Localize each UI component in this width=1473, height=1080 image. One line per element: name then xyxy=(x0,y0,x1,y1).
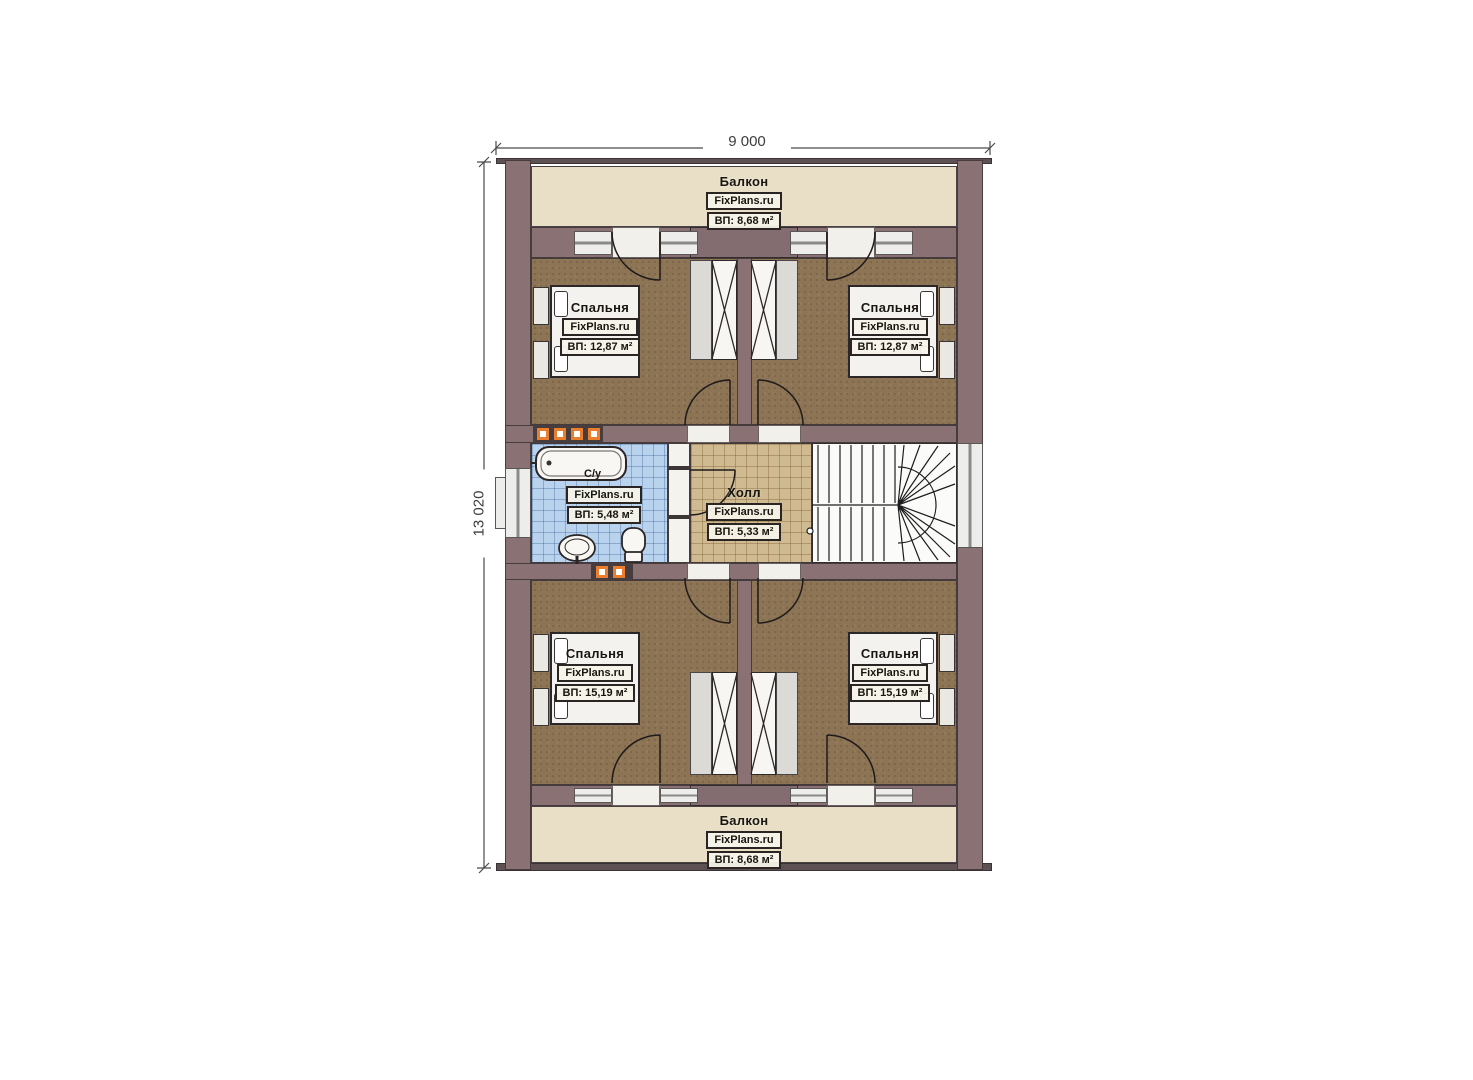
brand-box: FixPlans.ru xyxy=(557,664,632,682)
room-name: Спальня xyxy=(861,646,919,661)
vent-duct xyxy=(571,428,583,440)
room-name: Холл xyxy=(727,485,761,500)
wardrobe-bottom-right xyxy=(751,672,776,775)
brand-box: FixPlans.ru xyxy=(706,192,781,210)
window-bottom-1 xyxy=(574,788,612,803)
window-sill-left xyxy=(495,477,506,529)
window-top-3 xyxy=(790,231,827,255)
balcony-door-opening-top-left xyxy=(612,227,660,258)
wall-mid-lower xyxy=(505,563,957,580)
wardrobe-panel xyxy=(776,672,798,775)
vent-duct xyxy=(588,428,600,440)
wardrobe-top-left xyxy=(712,260,737,360)
outer-wall-top xyxy=(496,158,992,164)
room-name: Спальня xyxy=(571,300,629,315)
door-opening-hall-bedroom-top-left xyxy=(687,425,730,443)
wall-center-top xyxy=(737,258,752,425)
window-left-wall xyxy=(505,468,531,538)
window-bottom-3 xyxy=(790,788,827,803)
dimension-height-label: 13 020 xyxy=(471,470,488,558)
pier-top xyxy=(690,227,798,258)
door-opening-hall-bedroom-bottom-right xyxy=(758,563,801,580)
window-bottom-2 xyxy=(660,788,698,803)
area-box: ВП: 15,19 м² xyxy=(555,684,636,702)
brand-box: FixPlans.ru xyxy=(852,318,927,336)
area-box: ВП: 12,87 м² xyxy=(850,338,931,356)
wardrobe-top-right xyxy=(751,260,776,360)
door-opening-hall-bedroom-bottom-left xyxy=(687,563,730,580)
area-box: ВП: 12,87 м² xyxy=(560,338,641,356)
brand-box: FixPlans.ru xyxy=(706,503,781,521)
room-label-bedroom-bottom-left: Спальня FixPlans.ru ВП: 15,19 м² xyxy=(530,646,660,702)
vent-duct xyxy=(554,428,566,440)
area-box: ВП: 8,68 м² xyxy=(707,212,782,230)
wall-center-bottom xyxy=(737,580,752,785)
room-label-bedroom-bottom-right: Спальня FixPlans.ru ВП: 15,19 м² xyxy=(825,646,955,702)
area-box: ВП: 8,68 м² xyxy=(707,851,782,869)
window-bottom-4 xyxy=(875,788,913,803)
room-name: Балкон xyxy=(720,813,769,828)
door-opening-hall-bedroom-top-right xyxy=(758,425,801,443)
vent-duct xyxy=(596,566,608,578)
room-label-bedroom-top-left: Спальня FixPlans.ru ВП: 12,87 м² xyxy=(535,300,665,356)
room-label-bedroom-top-right: Спальня FixPlans.ru ВП: 12,87 м² xyxy=(825,300,955,356)
staircase xyxy=(812,443,957,563)
area-box: ВП: 5,33 м² xyxy=(707,523,782,541)
brand-box: FixPlans.ru xyxy=(566,486,641,504)
dimension-width-label: 9 000 xyxy=(703,133,791,150)
room-label-bathroom: FixPlans.ru ВП: 5,48 м² xyxy=(539,484,669,524)
floor-plan-page: 9 000 13 020 Балкон FixPlans.ru ВП: 8,68… xyxy=(0,0,1473,1080)
wardrobe-panel xyxy=(690,672,712,775)
room-label-balcony-top: Балкон FixPlans.ru ВП: 8,68 м² xyxy=(679,174,809,230)
area-box: ВП: 5,48 м² xyxy=(567,506,642,524)
room-label-hall: Холл FixPlans.ru ВП: 5,33 м² xyxy=(679,485,809,541)
wardrobe-bottom-left xyxy=(712,672,737,775)
room-name-bathroom: С/у xyxy=(584,468,601,480)
brand-box: FixPlans.ru xyxy=(706,831,781,849)
balcony-door-opening-top-right xyxy=(827,227,875,258)
vent-duct xyxy=(537,428,549,440)
door-jamb xyxy=(668,466,690,470)
room-name: Спальня xyxy=(861,300,919,315)
room-name: Балкон xyxy=(720,174,769,189)
window-top-1 xyxy=(574,231,612,255)
room-name: Спальня xyxy=(566,646,624,661)
wardrobe-panel xyxy=(776,260,798,360)
window-top-2 xyxy=(660,231,698,255)
window-top-4 xyxy=(875,231,913,255)
area-box: ВП: 15,19 м² xyxy=(850,684,931,702)
wardrobe-panel xyxy=(690,260,712,360)
brand-box: FixPlans.ru xyxy=(852,664,927,682)
window-right-wall xyxy=(957,443,983,548)
balcony-door-opening-bottom-left xyxy=(612,785,660,806)
balcony-door-opening-bottom-right xyxy=(827,785,875,806)
brand-box: FixPlans.ru xyxy=(562,318,637,336)
vent-duct xyxy=(613,566,625,578)
pier-bottom xyxy=(690,785,798,806)
room-label-balcony-bottom: Балкон FixPlans.ru ВП: 8,68 м² xyxy=(679,813,809,869)
